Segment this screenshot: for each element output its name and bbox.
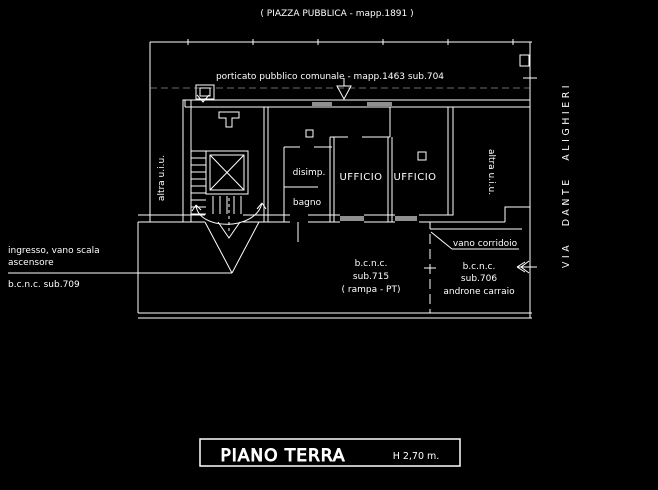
entrance-note-line2: ascensore: [8, 258, 54, 268]
window: [367, 102, 392, 106]
portico-column-right: [520, 55, 529, 66]
driveway-note-line1: b.c.n.c.: [463, 262, 496, 272]
elevator-x: [210, 155, 244, 190]
title-block-title: PIANO TERRA: [220, 446, 345, 466]
driveway-note-line2: sub.706: [461, 274, 497, 284]
driveway-arrow-icon: [517, 261, 537, 273]
corridor-label: vano corridoio: [453, 239, 518, 249]
ramp-note-line1: b.c.n.c.: [355, 259, 388, 269]
annotation-lines: [8, 222, 537, 313]
hatched-wall-left: [183, 100, 191, 222]
room-label-altra-uiu-right: altra u.i.u.: [486, 149, 496, 195]
window: [340, 216, 364, 221]
hatched-partition-right: [448, 107, 453, 215]
entrance-note-line1: ingresso, vano scala: [8, 246, 100, 256]
entrance-note-sub: b.c.n.c. sub.709: [8, 280, 80, 290]
floor-plan-screenshot: ( PIAZZA PUBBLICA - mapp.1891 ) porticat…: [0, 0, 658, 490]
window: [395, 216, 417, 221]
pillar-symbol: [306, 130, 313, 137]
room-label-ufficio-1: UFFICIO: [339, 172, 382, 183]
title-block: PIANO TERRA H 2,70 m.: [200, 439, 460, 466]
stair-treads-left: [191, 151, 206, 214]
room-label-ufficio-2: UFFICIO: [393, 172, 436, 183]
street-label: VIA DANTE ALIGHIERI: [561, 82, 572, 268]
stair-treads-bottom: [213, 196, 241, 214]
porticato-label: porticato pubblico comunale - mapp.1463 …: [216, 72, 444, 82]
piazza-label: ( PIAZZA PUBBLICA - mapp.1891 ): [260, 9, 413, 19]
pillar-symbol: [418, 152, 426, 160]
ramp-note-line3: ( rampa - PT): [342, 285, 401, 295]
window: [312, 102, 332, 106]
title-block-height-note: H 2,70 m.: [393, 451, 440, 462]
room-label-bagno: bagno: [293, 198, 322, 208]
entrance-leader: [205, 222, 259, 273]
portico-column-inner: [200, 88, 210, 96]
floor-plan-drawing: ( PIAZZA PUBBLICA - mapp.1891 ) porticat…: [0, 0, 658, 490]
room-label-disimpegno: disimp.: [293, 168, 326, 178]
t-column: [219, 112, 239, 127]
driveway-note-line3: androne carraio: [443, 287, 515, 297]
room-label-altra-uiu-left: altra u.i.u.: [157, 155, 167, 201]
stair-elevator-block: [191, 95, 266, 232]
ramp-note-line2: sub.715: [353, 272, 389, 282]
building-walls: [138, 100, 530, 242]
